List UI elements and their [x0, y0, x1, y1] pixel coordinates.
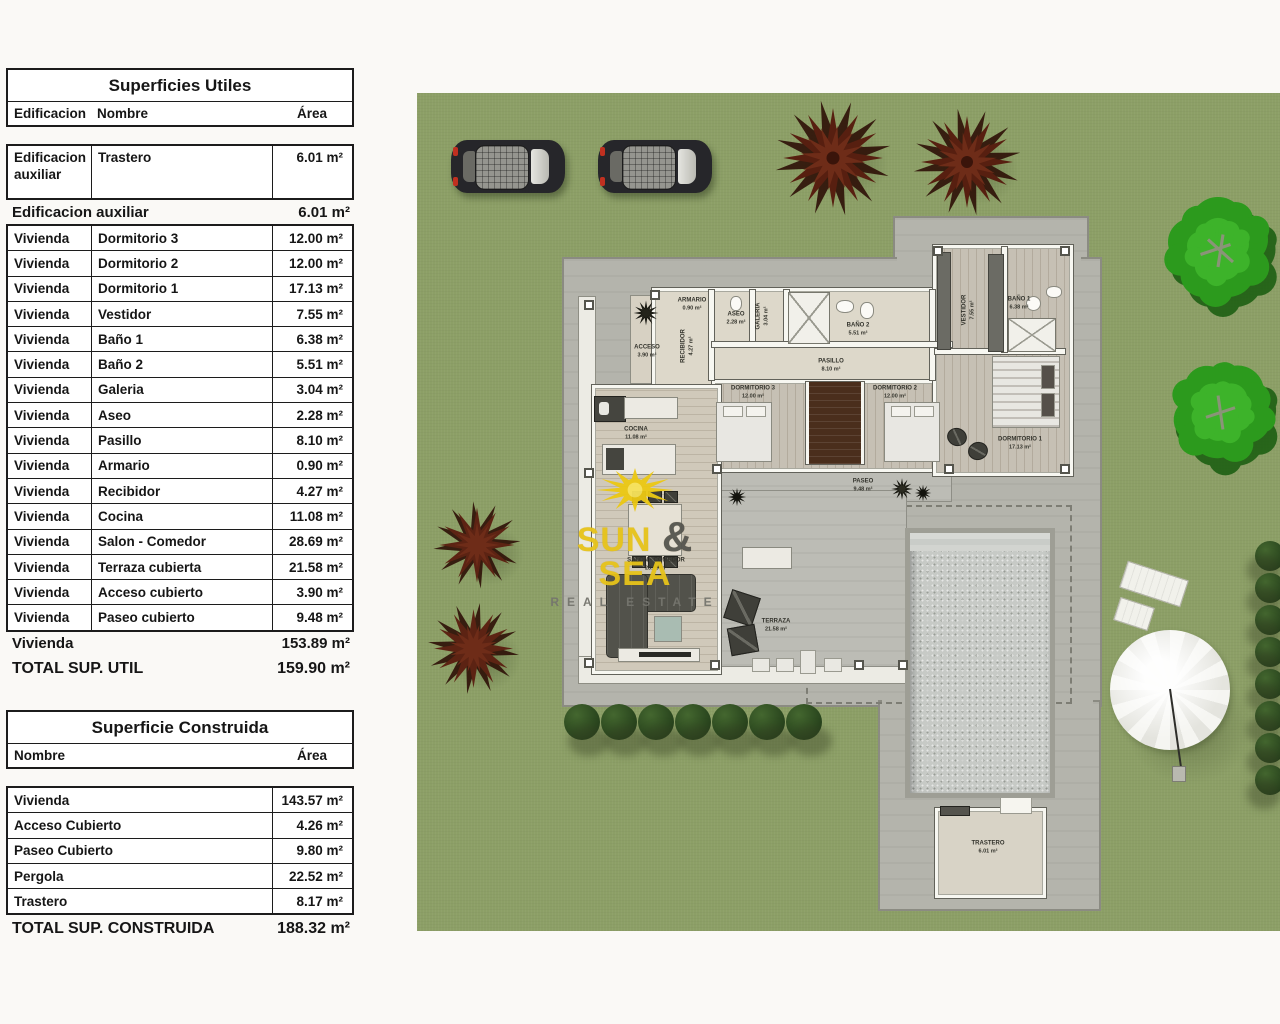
superficie-construida-rows: Vivienda 143.57 m² Acceso Cubierto 4.26 … — [6, 786, 354, 915]
cell-edificacion: Vivienda — [8, 327, 91, 351]
cell-area: 143.57 m² — [272, 788, 352, 812]
subtotal-area: 6.01 m² — [298, 204, 350, 221]
shower-bano2 — [788, 292, 830, 344]
hedge-bush — [1255, 605, 1280, 635]
coffee-table — [654, 616, 682, 642]
cell-area: 12.00 m² — [272, 251, 352, 275]
room-area: 9.48 m² — [853, 486, 874, 493]
tv-bench — [618, 648, 700, 662]
cell-nombre: Recibidor — [91, 479, 272, 503]
room-area: 0.90 m² — [678, 305, 707, 312]
room-area: 3.04 m² — [763, 303, 770, 330]
column-header-row: Edificacion Nombre Área — [8, 101, 352, 125]
kitchen-sink-unit — [594, 396, 626, 422]
total-label: TOTAL SUP. UTIL — [12, 660, 143, 678]
room-name: GALERIA — [756, 303, 764, 330]
cell-edificacion: Vivienda — [8, 352, 91, 376]
total-label: TOTAL SUP. CONSTRUIDA — [12, 920, 214, 938]
cell-edificacion: Vivienda — [8, 302, 91, 326]
toilet-aseo — [730, 296, 742, 311]
site-plan: ARMARIO 0.90 m² ASEO 2.28 m² GALERIA 3.0… — [417, 93, 1280, 931]
cell-nombre: Trastero — [8, 889, 272, 913]
hedge-bush — [749, 704, 785, 740]
cell-nombre: Baño 1 — [91, 327, 272, 351]
total-area: 159.90 m² — [277, 660, 350, 678]
room-area: 4.27 m² — [688, 329, 695, 363]
cell-edificacion: Vivienda — [8, 277, 91, 301]
cell-area: 22.52 m² — [272, 864, 352, 888]
cell-edificacion: Vivienda — [8, 555, 91, 579]
room-label-aseo: ASEO 2.28 m² — [727, 312, 746, 327]
toilet-bano2 — [860, 302, 874, 319]
swimming-pool — [905, 528, 1055, 798]
cell-nombre: Aseo — [91, 403, 272, 427]
wall — [750, 290, 755, 344]
column-header-nombre: Nombre — [91, 106, 272, 121]
room-name: COCINA — [624, 427, 648, 435]
room-name: ASEO — [727, 312, 746, 320]
room-area: 8.10 m² — [818, 366, 844, 373]
cell-area: 8.10 m² — [272, 428, 352, 452]
car — [598, 140, 712, 193]
cell-nombre: Armario — [91, 454, 272, 478]
cell-nombre: Acceso Cubierto — [8, 813, 272, 837]
table-row: Vivienda Recibidor 4.27 m² — [8, 478, 352, 503]
sun-icon — [587, 465, 683, 515]
cell-area: 8.17 m² — [272, 889, 352, 913]
room-label-vestidor: VESTIDOR 7.55 m² — [962, 295, 977, 326]
logo-word-sun: SUN — [577, 521, 652, 559]
hedge-bush — [1255, 637, 1280, 667]
subtotal-row-vivienda: Vivienda 153.89 m² — [6, 632, 354, 656]
cell-nombre: Dormitorio 3 — [91, 226, 272, 250]
table-row: Vivienda Baño 2 5.51 m² — [8, 351, 352, 376]
table-header: Superficie Construida Nombre Área — [6, 710, 354, 769]
room-name: PASEO — [853, 479, 874, 487]
red-tree — [768, 93, 898, 223]
room-label-dorm1: DORMITORIO 1 17.13 m² — [998, 437, 1042, 452]
cell-edificacion: Vivienda — [8, 504, 91, 528]
table-row: Pergola 22.52 m² — [8, 863, 352, 888]
room-area: 6.01 m² — [972, 848, 1005, 855]
table-row: Trastero 8.17 m² — [8, 888, 352, 913]
cell-nombre: Galeria — [91, 378, 272, 402]
column-header-nombre: Nombre — [8, 748, 272, 763]
column-header-row: Nombre Área — [8, 743, 352, 767]
logo-word-sea: SEA — [599, 555, 672, 593]
hedge-bush — [786, 704, 822, 740]
room-label-terraza: TERRAZA 21.58 m² — [762, 619, 791, 634]
room-label-pasillo: PASILLO 8.10 m² — [818, 359, 844, 374]
cell-area: 9.48 m² — [272, 605, 352, 629]
room-label-paseo: PASEO 9.48 m² — [853, 479, 874, 494]
column-header-area: Área — [272, 106, 352, 121]
green-tree — [1143, 177, 1280, 327]
total-row-construida: TOTAL SUP. CONSTRUIDA 188.32 m² — [6, 915, 354, 942]
cell-edificacion: Edificacion auxiliar — [8, 146, 91, 198]
kitchen-counter — [624, 397, 678, 419]
logo-wordmark: SUN & SEA — [550, 520, 720, 591]
pillar — [710, 660, 720, 670]
hedge-bush — [601, 704, 637, 740]
table-row: Vivienda Acceso cubierto 3.90 m² — [8, 579, 352, 604]
subtotal-label: Edificacion auxiliar — [12, 204, 149, 221]
bed-dorm3 — [716, 402, 772, 462]
cell-edificacion: Vivienda — [8, 428, 91, 452]
cell-area: 17.13 m² — [272, 277, 352, 301]
plant-icon — [726, 486, 748, 508]
column-header-area: Área — [272, 748, 352, 763]
room-area: 5.51 m² — [847, 330, 870, 337]
table-row: Vivienda Terraza cubierta 21.58 m² — [8, 554, 352, 579]
outdoor-chair — [727, 624, 759, 656]
outdoor-table — [742, 547, 792, 569]
cell-nombre: Dormitorio 1 — [91, 277, 272, 301]
room-label-cocina: COCINA 11.08 m² — [624, 427, 648, 442]
total-area: 188.32 m² — [277, 920, 350, 938]
room-name: DORMITORIO 1 — [998, 437, 1042, 445]
hedge-bush — [1255, 701, 1280, 731]
room-area: 3.90 m² — [634, 352, 660, 359]
hedge-bush — [1255, 765, 1280, 795]
floor-plan-page: Superficies Utiles Edificacion Nombre Ár… — [0, 0, 1280, 1024]
hedge-bush — [1255, 733, 1280, 763]
hedge-bush — [1255, 541, 1280, 571]
room-name: BAÑO 1 — [1008, 297, 1031, 305]
subtotal-label: Vivienda — [12, 635, 73, 652]
hedge-bush — [712, 704, 748, 740]
table-row: Vivienda Armario 0.90 m² — [8, 453, 352, 478]
bed-dorm1 — [992, 356, 1060, 428]
table-row: Vivienda Salon - Comedor 28.69 m² — [8, 529, 352, 554]
room-label-recibidor: RECIBIDOR 4.27 m² — [681, 329, 696, 363]
room-name: BAÑO 2 — [847, 323, 870, 331]
pillar — [933, 246, 943, 256]
cell-nombre: Pasillo — [91, 428, 272, 452]
cell-area: 21.58 m² — [272, 555, 352, 579]
room-label-galeria: GALERIA 3.04 m² — [756, 303, 771, 330]
room-name: TERRAZA — [762, 619, 791, 627]
cell-area: 6.38 m² — [272, 327, 352, 351]
red-tree — [427, 495, 527, 595]
cell-edificacion: Vivienda — [8, 530, 91, 554]
room-name: DORMITORIO 3 — [731, 386, 775, 394]
cell-edificacion: Vivienda — [8, 580, 91, 604]
sink-bano2 — [836, 300, 854, 313]
room-label-trastero: TRASTERO 6.01 m² — [972, 841, 1005, 856]
watermark-logo: SUN & SEA REAL ESTATE — [550, 465, 720, 609]
cell-nombre: Vestidor — [91, 302, 272, 326]
room-area: 2.28 m² — [727, 319, 746, 326]
hedge-bush — [1255, 573, 1280, 603]
cell-nombre: Dormitorio 2 — [91, 251, 272, 275]
table-row: Vivienda Dormitorio 3 12.00 m² — [8, 226, 352, 250]
cell-area: 9.80 m² — [272, 839, 352, 863]
cell-area: 28.69 m² — [272, 530, 352, 554]
toilet-bano1 — [1046, 286, 1062, 298]
vestidor-closet — [988, 254, 1004, 352]
pillar — [944, 464, 954, 474]
cell-edificacion: Vivienda — [8, 251, 91, 275]
table-header: Superficies Utiles Edificacion Nombre Ár… — [6, 68, 354, 127]
table-row: Vivienda Paseo cubierto 9.48 m² — [8, 604, 352, 629]
logo-ampersand: & — [662, 513, 693, 560]
table-row: Paseo Cubierto 9.80 m² — [8, 838, 352, 863]
cell-area: 4.27 m² — [272, 479, 352, 503]
red-tree — [421, 596, 526, 701]
cell-nombre: Pergola — [8, 864, 272, 888]
logo-subtitle: REAL ESTATE — [550, 595, 720, 609]
hedge-bush — [638, 704, 674, 740]
pillar — [854, 660, 864, 670]
stepping-stone — [752, 658, 770, 672]
room-label-armario: ARMARIO 0.90 m² — [678, 298, 707, 313]
plant-icon — [913, 483, 933, 503]
cell-edificacion: Vivienda — [8, 403, 91, 427]
subtotal-row-aux: Edificacion auxiliar 6.01 m² — [6, 200, 354, 224]
cell-nombre: Vivienda — [8, 788, 272, 812]
stepping-stone — [776, 658, 794, 672]
column-header-edificacion: Edificacion — [8, 106, 91, 121]
cell-area: 6.01 m² — [272, 146, 352, 198]
table-gap — [6, 127, 354, 144]
table-row: Vivienda Galeria 3.04 m² — [8, 377, 352, 402]
hall-wardrobe — [806, 382, 864, 464]
pillar — [584, 300, 594, 310]
total-row-util: TOTAL SUP. UTIL 159.90 m² — [6, 656, 354, 683]
table-row: Acceso Cubierto 4.26 m² — [8, 812, 352, 837]
shower-bano1 — [1008, 318, 1056, 352]
room-label-acceso: ACCESO 3.90 m² — [634, 345, 660, 360]
table-row: Vivienda Vestidor 7.55 m² — [8, 301, 352, 326]
cell-edificacion: Vivienda — [8, 605, 91, 629]
table-title: Superficies Utiles — [8, 70, 352, 101]
room-area: 6.38 m² — [1008, 304, 1031, 311]
table-row-aux: Edificacion auxiliar Trastero 6.01 m² — [6, 144, 354, 200]
car — [451, 140, 565, 193]
table-row: Vivienda Pasillo 8.10 m² — [8, 427, 352, 452]
room-name: RECIBIDOR — [681, 329, 689, 363]
room-area: 7.55 m² — [969, 295, 976, 326]
cell-edificacion: Vivienda — [8, 226, 91, 250]
cell-nombre: Acceso cubierto — [91, 580, 272, 604]
hedge-bush — [1255, 669, 1280, 699]
stepping-stone — [824, 658, 842, 672]
room-area: 12.00 m² — [873, 393, 917, 400]
pillar — [1060, 464, 1070, 474]
cell-area: 5.51 m² — [272, 352, 352, 376]
cell-nombre: Salon - Comedor — [91, 530, 272, 554]
pillar — [584, 658, 594, 668]
table-row: Vivienda 143.57 m² — [8, 788, 352, 812]
cell-area: 3.04 m² — [272, 378, 352, 402]
wall — [930, 290, 935, 380]
cell-area: 7.55 m² — [272, 302, 352, 326]
bed-dorm2 — [884, 402, 940, 462]
room-name: ACCESO — [634, 345, 660, 353]
plant-icon — [631, 298, 661, 328]
cell-area: 12.00 m² — [272, 226, 352, 250]
superficies-utiles-table: Superficies Utiles Edificacion Nombre Ár… — [6, 68, 354, 683]
room-name: DORMITORIO 2 — [873, 386, 917, 394]
cell-area: 4.26 m² — [272, 813, 352, 837]
table-title: Superficie Construida — [8, 712, 352, 743]
room-label-bano1: BAÑO 1 6.38 m² — [1008, 297, 1031, 312]
cell-nombre: Paseo cubierto — [91, 605, 272, 629]
table-row: Vivienda Baño 1 6.38 m² — [8, 326, 352, 351]
parasol-base — [1172, 766, 1186, 782]
room-name: PASILLO — [818, 359, 844, 367]
superficies-utiles-rows: Vivienda Dormitorio 3 12.00 m² Vivienda … — [6, 224, 354, 632]
cell-nombre: Paseo Cubierto — [8, 839, 272, 863]
vestidor-closet — [937, 252, 951, 350]
cell-area: 11.08 m² — [272, 504, 352, 528]
room-label-bano2: BAÑO 2 5.51 m² — [847, 323, 870, 338]
pool-step — [910, 545, 1050, 551]
sun-lounger — [1113, 597, 1155, 631]
table-row: Vivienda Dormitorio 1 17.13 m² — [8, 276, 352, 301]
table-row: Vivienda Aseo 2.28 m² — [8, 402, 352, 427]
table-gap — [6, 769, 354, 786]
cell-nombre: Baño 2 — [91, 352, 272, 376]
subtotal-area: 153.89 m² — [282, 635, 350, 652]
wall — [712, 342, 952, 347]
room-area: 12.00 m² — [731, 393, 775, 400]
red-tree — [907, 102, 1027, 222]
hedge-bush — [675, 704, 711, 740]
cell-area: 0.90 m² — [272, 454, 352, 478]
pillar — [898, 660, 908, 670]
table-row: Vivienda Dormitorio 2 12.00 m² — [8, 250, 352, 275]
cell-edificacion: Vivienda — [8, 479, 91, 503]
room-label-dorm2: DORMITORIO 2 12.00 m² — [873, 386, 917, 401]
cell-nombre: Cocina — [91, 504, 272, 528]
trastero-lintel — [940, 806, 970, 816]
room-area: 21.58 m² — [762, 626, 791, 633]
room-area: 17.13 m² — [998, 444, 1042, 451]
cell-area: 3.90 m² — [272, 580, 352, 604]
cell-edificacion: Vivienda — [8, 378, 91, 402]
room-label-dorm3: DORMITORIO 3 12.00 m² — [731, 386, 775, 401]
room-name: ARMARIO — [678, 298, 707, 306]
plant-icon — [889, 476, 915, 502]
cell-area: 2.28 m² — [272, 403, 352, 427]
cell-nombre: Terraza cubierta — [91, 555, 272, 579]
hedge-bush — [564, 704, 600, 740]
green-tree — [1148, 340, 1280, 485]
cell-nombre: Trastero — [91, 146, 272, 198]
cell-edificacion: Vivienda — [8, 454, 91, 478]
room-name: VESTIDOR — [962, 295, 970, 326]
table-row: Vivienda Cocina 11.08 m² — [8, 503, 352, 528]
room-name: TRASTERO — [972, 841, 1005, 849]
stepping-stone — [800, 650, 816, 674]
wall — [709, 290, 714, 380]
pillar — [1060, 246, 1070, 256]
superficie-construida-table: Superficie Construida Nombre Área Vivien… — [6, 710, 354, 942]
room-area: 11.08 m² — [624, 434, 648, 441]
